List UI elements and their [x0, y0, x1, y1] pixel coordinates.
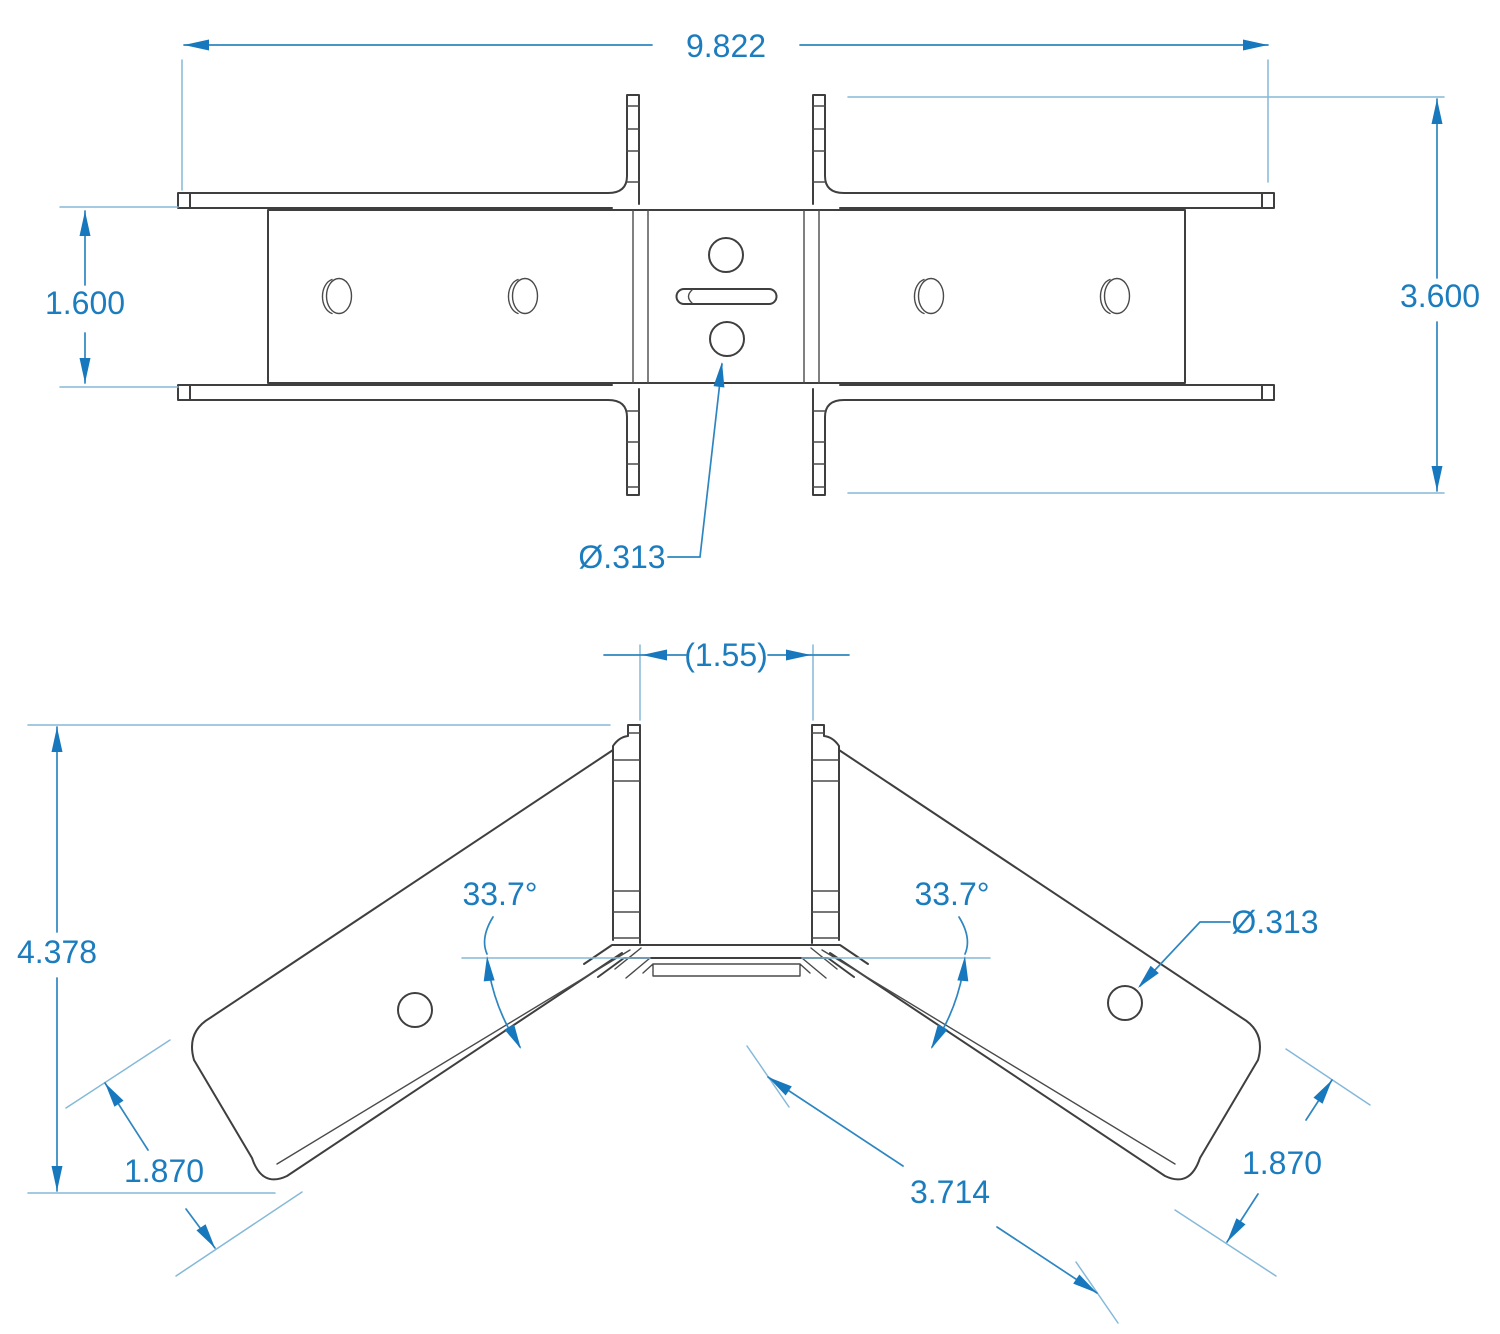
bracket-drawing: 9.822 1.600 3.600 Ø.313: [0, 0, 1500, 1334]
top-left-tab-bend-seams: [627, 106, 639, 182]
top-view-dimensions: 9.822 1.600 3.600 Ø.313: [45, 28, 1480, 575]
arrow: [482, 956, 495, 982]
dim-view-height: 4.378: [17, 934, 97, 970]
left-wing-outline: [192, 750, 622, 1179]
dim-hole-diameter-bottom: Ø.313: [1231, 904, 1318, 940]
bottom-web: [584, 945, 868, 977]
right-wing-hole: [1108, 986, 1142, 1020]
right-wing-inner-edge: [822, 950, 1175, 1164]
channel-right-tab: [812, 725, 839, 943]
top-right-flange-strip: [813, 95, 1274, 208]
dim-flange-width-left: 1.870: [124, 1153, 204, 1189]
arrow: [504, 1024, 525, 1051]
left-wing-inner-edge: [277, 950, 630, 1164]
center-slot-inner-arc: [689, 290, 693, 303]
drawing-sheet: 9.822 1.600 3.600 Ø.313: [0, 0, 1500, 1334]
top-right-tab-bend-seams: [813, 106, 825, 182]
arrow: [1432, 466, 1443, 491]
top-view: [178, 95, 1274, 495]
counterbore-hole-1: [322, 279, 351, 314]
bottom-left-tab-bend-seams: [627, 411, 639, 487]
counterbore-hole-3: [914, 279, 943, 314]
dim-bend-angle-right: 33.7°: [914, 876, 989, 912]
bottom-right-flange-strip: [813, 385, 1274, 495]
arrow: [786, 650, 811, 661]
right-wing-outline: [830, 750, 1260, 1179]
dim-bend-angle-left: 33.7°: [462, 876, 537, 912]
bottom-view-dimensions: (1.55) 4.378 33.7° 33.7° Ø.313 1.870 3.7…: [17, 637, 1370, 1323]
arrow: [1222, 1218, 1245, 1245]
arrow: [80, 358, 91, 383]
band-bend-lines: [633, 210, 819, 383]
dim-flange-width-right: 1.870: [1242, 1145, 1322, 1181]
arrow: [80, 211, 91, 236]
dim-overall-height: 3.600: [1400, 278, 1480, 314]
hole-leader-line: [668, 364, 722, 557]
channel-left-tab-seams: [613, 733, 640, 938]
arrow: [1432, 99, 1443, 124]
extension-lines: [28, 645, 1370, 1323]
center-hole-lower: [710, 322, 744, 356]
arrow: [926, 1024, 947, 1051]
arrow: [957, 956, 970, 982]
channel-left-tab: [613, 725, 640, 943]
arrow: [642, 650, 667, 661]
dim-channel-width-ref: (1.55): [684, 637, 768, 673]
flat-band-outline: [268, 210, 1185, 383]
left-wing-hole: [398, 993, 432, 1027]
counterbore-hole-2: [508, 279, 537, 314]
bottom-view: [192, 725, 1260, 1179]
dim-flange-length: 3.714: [910, 1174, 990, 1210]
bottom-left-flange-strip: [178, 385, 639, 495]
dim-hole-diameter-top: Ø.313: [578, 539, 665, 575]
arrow: [52, 1166, 63, 1191]
arrow: [1243, 40, 1268, 51]
arrow: [184, 40, 209, 51]
center-hole-upper: [709, 238, 743, 272]
arrow: [52, 727, 63, 752]
dim-overall-length: 9.822: [686, 28, 766, 64]
dim-band-width: 1.600: [45, 285, 125, 321]
bottom-web-inner-panel: [643, 964, 810, 976]
top-left-flange-strip: [178, 95, 639, 208]
arrow: [196, 1224, 219, 1251]
channel-right-tab-seams: [812, 733, 839, 938]
bend-zone-hatch: [615, 948, 837, 978]
counterbore-hole-4: [1100, 279, 1129, 314]
bottom-right-tab-bend-seams: [813, 411, 825, 487]
